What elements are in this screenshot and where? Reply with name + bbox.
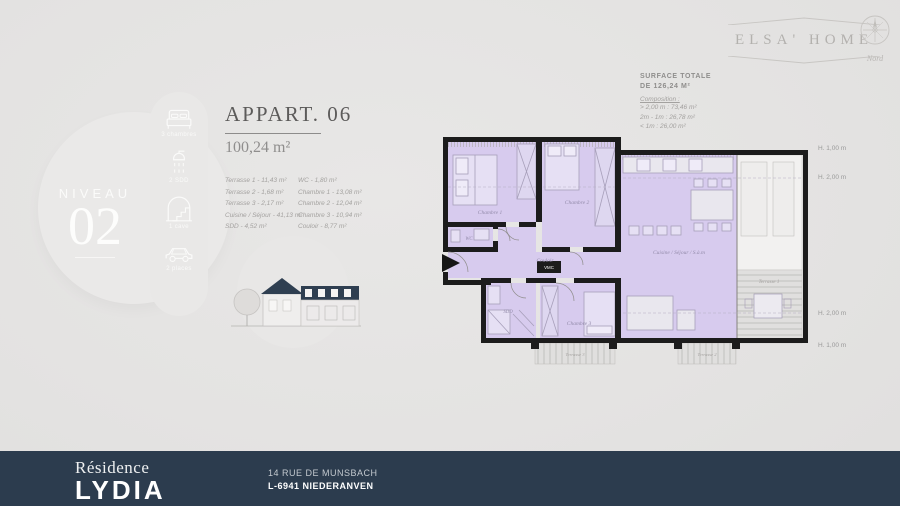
amenity-label: 2 places (164, 266, 194, 272)
height-label: H. 1,00 m (818, 145, 846, 152)
room-label-wc: WC (465, 237, 473, 242)
residence-name: LYDIA (75, 475, 166, 506)
amenity-label: 2 SDD (165, 178, 193, 184)
amenity-bedrooms: 3 chambres (161, 106, 196, 138)
room-list-col1: Terrasse 1 - 11,43 m² Terrasse 2 - 1,68 … (225, 175, 302, 233)
title-divider (225, 133, 321, 134)
amenity-label: 3 chambres (161, 132, 196, 138)
elevation-drawing-icon (225, 262, 365, 334)
amenity-cellar: 1 cave (165, 196, 193, 230)
car-icon (164, 242, 194, 264)
room-list-item: Chambre 2 - 12,04 m² (298, 198, 362, 210)
amenities-list: 3 chambres 2 SDD 1 cave (152, 106, 206, 272)
room-label-terrasse2: Terrasse 2 (697, 352, 717, 357)
room-list-item: Couloir - 8,77 m² (298, 221, 362, 233)
room-label-couloir: Couloir (536, 258, 554, 264)
shower-icon (165, 150, 193, 176)
apartment-title: APPART. 06 (225, 102, 352, 127)
room-list-item: Terrasse 1 - 11,43 m² (225, 175, 302, 187)
compass-icon (857, 12, 893, 48)
room-label-terrasse1: Terrasse 1 (759, 280, 780, 285)
residence-logo: Résidence LYDIA (75, 458, 166, 506)
compass-label: Nord (854, 54, 896, 63)
terrace1-area (737, 155, 802, 343)
room-label-sdd: SDD (503, 310, 513, 315)
room-label-chambre1: Chambre 1 (478, 210, 503, 216)
room-label-cuisine: Cuisine / Séjour / S.à.m (653, 250, 705, 256)
room-label-chambre2: Chambre 2 (565, 200, 590, 206)
floor-plan: Chambre 1 Chambre 2 Chambre 3 WC SDD Cou… (441, 100, 813, 368)
level-number: 02 (50, 201, 140, 252)
room-list-item: Terrasse 3 - 2,17 m² (225, 198, 302, 210)
footer-bar: Résidence LYDIA 14 RUE DE MUNSBACH L-694… (0, 451, 900, 506)
room-list-item: Terrasse 2 - 1,68 m² (225, 187, 302, 199)
bed-icon (165, 106, 193, 130)
level-underline (75, 257, 115, 258)
building-elevation (225, 262, 365, 339)
room-list-item: Chambre 1 - 13,08 m² (298, 187, 362, 199)
height-label: H. 2,00 m (818, 174, 846, 181)
room-list-item: SDD - 4,52 m² (225, 221, 302, 233)
cellar-icon (165, 196, 193, 222)
height-label: H. 1,00 m (818, 342, 846, 349)
amenity-bathrooms: 2 SDD (165, 150, 193, 184)
room-list-item: Chambre 3 - 10,94 m² (298, 210, 362, 222)
height-label: H. 2,00 m (818, 310, 846, 317)
room-list-col2: WC - 1,80 m² Chambre 1 - 13,08 m² Chambr… (298, 175, 362, 233)
room-label-chambre3: Chambre 3 (567, 321, 592, 327)
address-line1: 14 RUE DE MUNSBACH (268, 468, 378, 478)
level-badge: NIVEAU 02 (50, 186, 140, 258)
residence-address: 14 RUE DE MUNSBACH L-6941 NIEDERANVEN (268, 468, 378, 491)
amenity-label: 1 cave (165, 224, 193, 230)
apartment-area: 100,24 m² (225, 139, 290, 157)
compass-north-indicator: Nord (854, 12, 896, 63)
amenity-parking: 2 places (164, 242, 194, 272)
room-list-item: WC - 1,80 m² (298, 175, 362, 187)
room-list-item: Cuisine / Séjour - 41,13 m² (225, 210, 302, 222)
room-label-terrasse3: Terrasse 3 (565, 352, 585, 357)
slide: ELSA' HOME Nord NIVEAU 02 (0, 0, 900, 506)
surface-title-line2: DE 126,24 M² (640, 82, 711, 92)
surface-title-line1: SURFACE TOTALE (640, 72, 711, 82)
room-label-vmc: VMC (544, 265, 554, 270)
address-line2: L-6941 NIEDERANVEN (268, 481, 378, 491)
